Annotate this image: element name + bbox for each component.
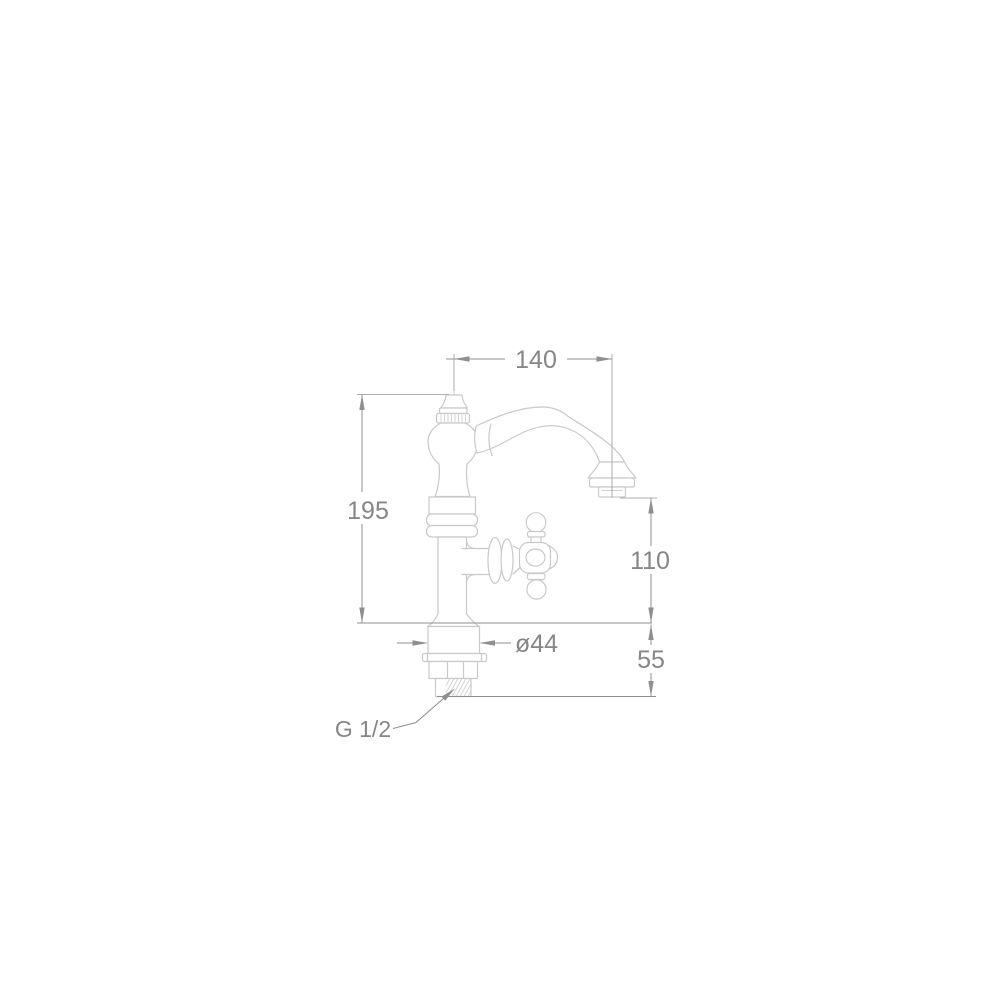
collar-ring-2 bbox=[427, 526, 478, 538]
spout bbox=[475, 407, 625, 462]
arm-fillet-top bbox=[467, 542, 476, 549]
dim-arrow bbox=[359, 608, 364, 624]
faucet-body bbox=[428, 423, 478, 497]
handle-flange-bottom bbox=[528, 574, 546, 580]
collar-block bbox=[429, 497, 476, 514]
dim-label-under-depth: 55 bbox=[637, 646, 665, 674]
dim-arrow bbox=[648, 498, 653, 514]
dim-label-base-diameter: ø44 bbox=[515, 630, 558, 658]
arm-tube-fill bbox=[461, 549, 490, 575]
base-flange bbox=[423, 654, 487, 662]
dimension-under-depth: 55 bbox=[637, 625, 665, 697]
collar-ring-1 bbox=[427, 514, 478, 526]
base-cylinder bbox=[428, 627, 480, 654]
dim-arrow bbox=[359, 395, 364, 411]
dim-label-spout-reach: 140 bbox=[515, 346, 557, 374]
arm-disc-2 bbox=[501, 539, 513, 581]
dim-arrow bbox=[413, 640, 429, 645]
dim-arrow bbox=[480, 640, 496, 645]
handle-hub bbox=[520, 543, 551, 574]
dim-arrow bbox=[597, 356, 613, 361]
arm-fillet-bottom bbox=[467, 575, 476, 582]
callout-label-thread: G 1/2 bbox=[335, 716, 391, 742]
knurled-nut bbox=[437, 414, 470, 424]
dim-label-total-height: 195 bbox=[347, 497, 389, 525]
dim-arrow bbox=[648, 681, 653, 697]
dim-arrow bbox=[648, 625, 653, 641]
dim-arrow bbox=[648, 608, 653, 624]
dim-label-outlet-height: 110 bbox=[630, 547, 670, 575]
arm-disc-1 bbox=[488, 538, 502, 584]
technical-drawing: 140 195 110 55 ø44 G bbox=[0, 0, 1000, 1000]
hex-nut bbox=[429, 662, 478, 679]
dimension-outlet-height: 110 bbox=[620, 498, 670, 623]
finial-cone bbox=[441, 395, 468, 408]
handle-sphere-bottom bbox=[527, 580, 546, 599]
handle-flange-top bbox=[528, 532, 546, 538]
handle-sphere-top bbox=[526, 513, 546, 533]
nut-ring bbox=[440, 408, 468, 414]
drawing-canvas: 140 195 110 55 ø44 G bbox=[0, 0, 1000, 1000]
dim-arrow bbox=[454, 356, 470, 361]
